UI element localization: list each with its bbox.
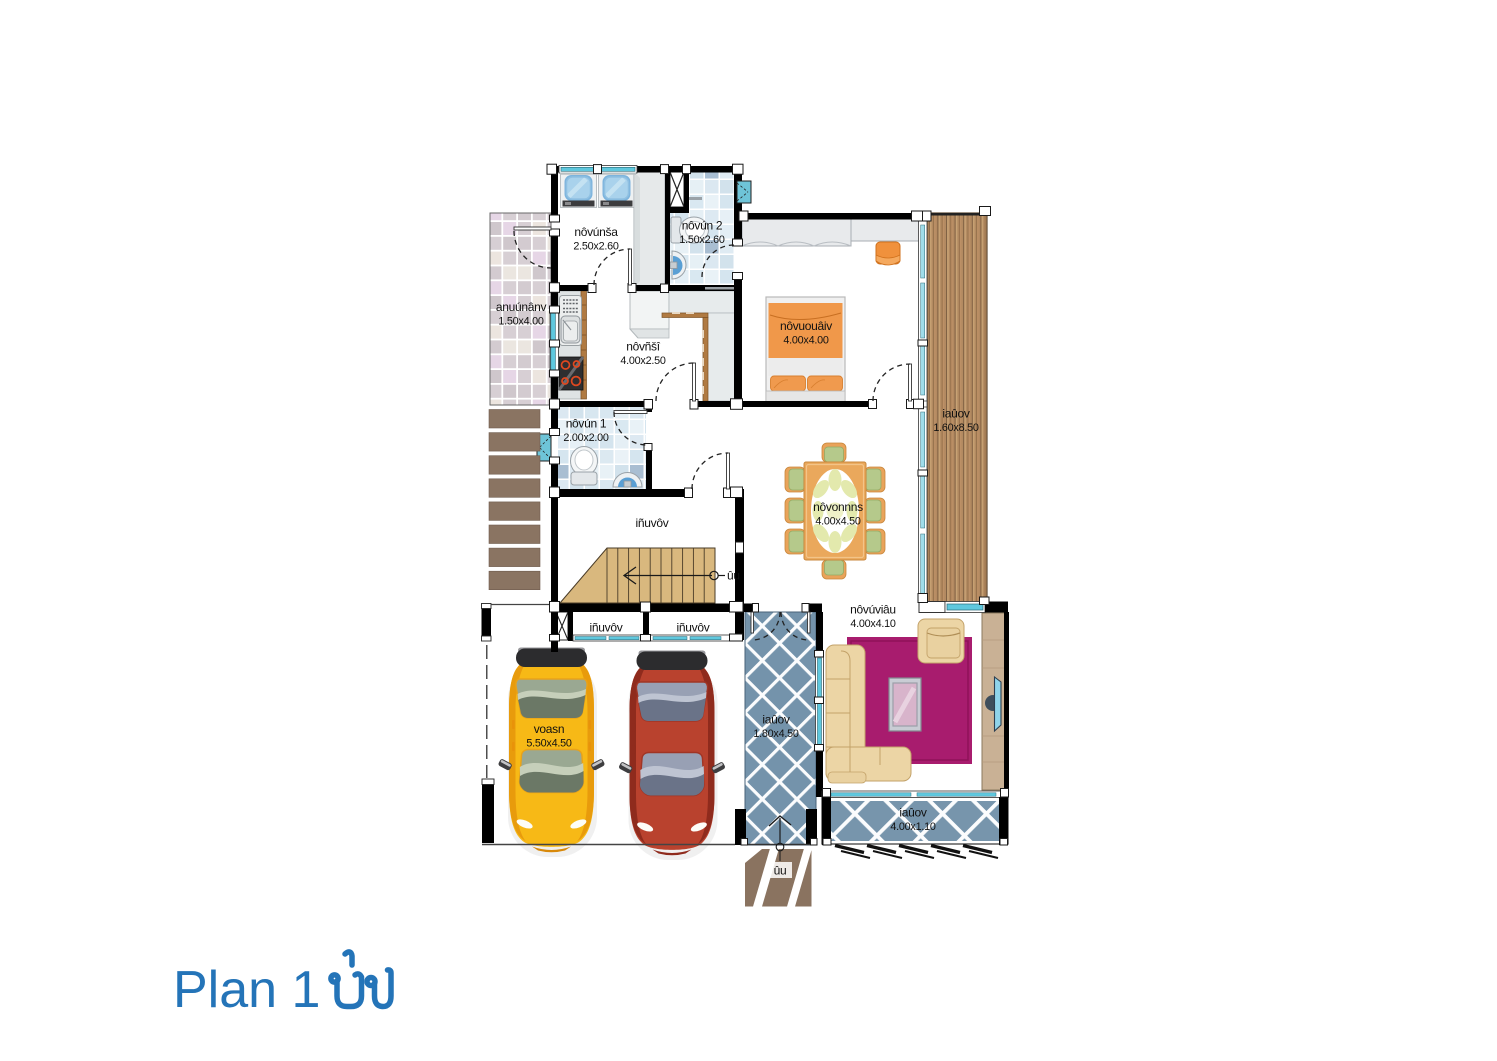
svg-text:anuúnânv: anuúnânv	[496, 300, 547, 314]
svg-text:voasn: voasn	[534, 722, 565, 736]
svg-text:nôvún 2: nôvún 2	[682, 219, 723, 233]
svg-text:Plan 1: Plan 1	[173, 961, 320, 1019]
svg-text:1.80x4.50: 1.80x4.50	[753, 728, 798, 740]
svg-text:iñuvôv: iñuvôv	[636, 516, 669, 530]
svg-text:nôvonnns: nôvonnns	[813, 500, 863, 514]
svg-text:ûu: ûu	[774, 864, 787, 878]
svg-text:nôvúnša: nôvúnša	[574, 225, 618, 239]
svg-text:iñuvôv: iñuvôv	[590, 621, 623, 635]
svg-text:iaûov: iaûov	[942, 407, 969, 421]
svg-text:4.00x4.10: 4.00x4.10	[850, 618, 895, 630]
svg-text:iñuvôv: iñuvôv	[677, 621, 710, 635]
svg-text:4.00x4.00: 4.00x4.00	[783, 335, 828, 347]
svg-text:1.60x8.50: 1.60x8.50	[933, 422, 978, 434]
svg-text:4.00x4.50: 4.00x4.50	[815, 516, 860, 528]
svg-text:iaûov: iaûov	[762, 713, 789, 727]
svg-text:iaûov: iaûov	[899, 806, 926, 820]
svg-text:4.00x2.50: 4.00x2.50	[620, 355, 665, 367]
svg-text:1.50x2.60: 1.50x2.60	[679, 234, 724, 246]
svg-text:nôvúviâu: nôvúviâu	[850, 603, 896, 617]
svg-text:2.50x2.60: 2.50x2.60	[573, 241, 618, 253]
svg-text:4.00x1.10: 4.00x1.10	[890, 821, 935, 833]
svg-text:2.00x2.00: 2.00x2.00	[563, 432, 608, 444]
svg-text:nôvún 1: nôvún 1	[566, 417, 607, 431]
svg-text:5.50x4.50: 5.50x4.50	[526, 738, 571, 750]
svg-text:ûu: ûu	[727, 569, 740, 583]
svg-text:nôvuouâiv: nôvuouâiv	[780, 319, 832, 333]
svg-text:nôvñšî: nôvñšî	[626, 340, 661, 354]
svg-text:1.50x4.00: 1.50x4.00	[498, 316, 543, 328]
